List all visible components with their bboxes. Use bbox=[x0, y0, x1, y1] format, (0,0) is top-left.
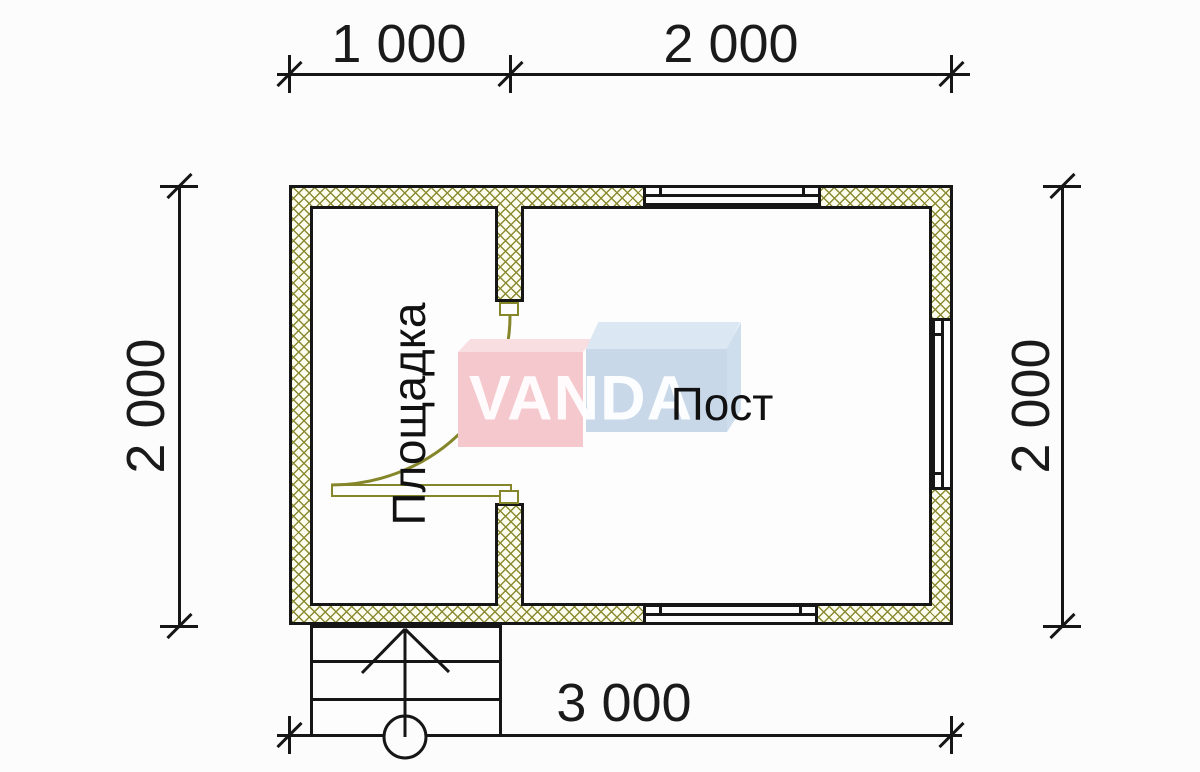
window-glass-line bbox=[646, 613, 815, 616]
window-bottom bbox=[643, 604, 818, 625]
dim-label-top-left: 1 000 bbox=[331, 17, 466, 71]
watermark-box-blue-top bbox=[586, 322, 740, 349]
entrance-stairs bbox=[310, 625, 502, 737]
dim-label-left: 2 000 bbox=[119, 338, 173, 473]
window-tick bbox=[935, 472, 942, 475]
window-glass-line bbox=[941, 321, 944, 487]
dimension-line-bottom bbox=[277, 734, 962, 737]
window-tick bbox=[799, 607, 802, 614]
dimension-line-left bbox=[178, 185, 181, 627]
stair-step bbox=[313, 660, 499, 663]
door-jamb-top bbox=[499, 302, 519, 316]
window-top bbox=[643, 185, 821, 206]
dimension-line-right bbox=[1061, 185, 1064, 627]
door-jamb-bottom bbox=[499, 490, 519, 504]
room-label-post: Пост bbox=[671, 381, 774, 427]
watermark-logo-text: VANDA bbox=[469, 368, 693, 431]
room-label-platform: Площадка bbox=[386, 303, 432, 526]
floor-plan: 1 000 2 000 2 000 2 000 3 000 VANDA Площ… bbox=[0, 0, 1200, 772]
window-tick bbox=[802, 188, 805, 195]
window-tick bbox=[659, 607, 662, 614]
window-glass-line bbox=[646, 194, 818, 197]
window-tick bbox=[935, 333, 942, 336]
dim-label-bottom: 3 000 bbox=[556, 676, 691, 730]
window-tick bbox=[659, 188, 662, 195]
window-right bbox=[932, 318, 953, 490]
stair-step bbox=[313, 698, 499, 701]
watermark-box-pink-top bbox=[458, 339, 595, 352]
dim-label-top-right: 2 000 bbox=[663, 17, 798, 71]
dim-label-right: 2 000 bbox=[1004, 338, 1058, 473]
